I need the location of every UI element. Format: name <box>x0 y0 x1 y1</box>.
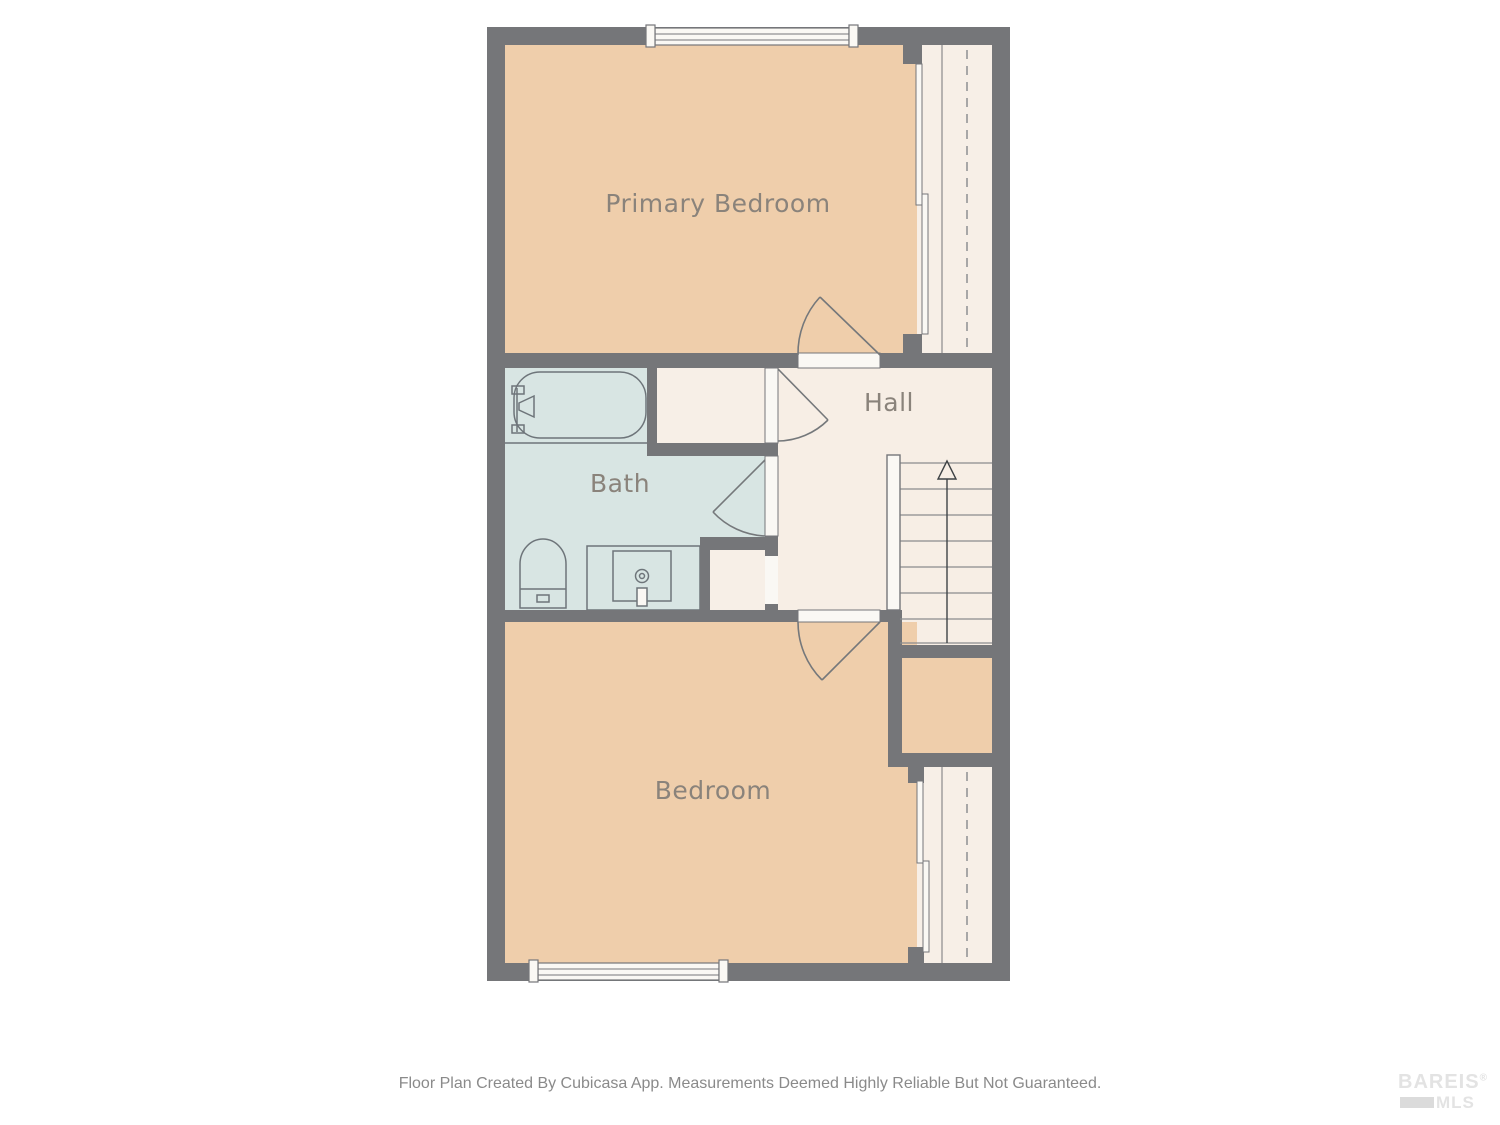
closet-stub-top-b <box>903 334 922 353</box>
watermark-bareis-mls: BAREIS® MLS <box>1398 1072 1490 1111</box>
watermark-brand: BAREIS® <box>1398 1072 1490 1092</box>
closet-stub-top-a <box>903 45 922 64</box>
wall-bedroom-hall-left <box>487 353 798 368</box>
wall-bedroom-hall-right <box>880 353 1010 368</box>
room-label-primary-bedroom: Primary Bedroom <box>605 189 830 218</box>
stair-railing <box>887 455 900 610</box>
room-label-hall: Hall <box>864 388 914 417</box>
door-stub-1 <box>765 443 778 456</box>
primary-bedroom-door-sill <box>798 353 880 368</box>
hall-closet-a-floor <box>657 366 765 443</box>
closet-b-stub-top <box>765 550 778 556</box>
outer-wall-right <box>992 27 1010 981</box>
alcove-bottom-wall <box>902 753 992 767</box>
closet-b-left-wall <box>700 537 710 622</box>
room-label-bedroom: Bedroom <box>655 776 772 805</box>
stair-bottom-wall <box>902 645 992 658</box>
sliding-door-leaf <box>922 194 928 334</box>
floor-plan-drawing: Primary Bedroom Bath Hall Bedroom <box>0 0 1500 1125</box>
closet-a-bottom-wall <box>647 443 773 456</box>
wall-bath-bedroom <box>487 610 798 622</box>
footer-disclaimer: Floor Plan Created By Cubicasa App. Meas… <box>0 1075 1500 1093</box>
watermark-mls: MLS <box>1398 1094 1490 1111</box>
watermark-bar-icon <box>1400 1097 1434 1108</box>
bedroom-door-sill <box>798 610 880 622</box>
floor-plan-page: Primary Bedroom Bath Hall Bedroom Floor … <box>0 0 1500 1125</box>
window-bottom <box>529 960 728 982</box>
closet-b-opening <box>765 556 778 604</box>
sliding-door-leaf <box>917 781 923 863</box>
bath-door-sill <box>765 456 778 536</box>
window-top <box>646 25 858 47</box>
hall-closet-b-floor <box>710 550 765 610</box>
sink-drain <box>637 588 647 606</box>
room-label-bath: Bath <box>590 469 650 498</box>
closet-b-top-wall <box>700 537 778 550</box>
closet-a-door-sill <box>765 368 778 443</box>
outer-wall-left <box>487 27 505 981</box>
sliding-door-leaf <box>916 64 922 205</box>
closet-b-stub-bottom <box>765 604 778 610</box>
closet-a-left-wall <box>647 353 657 456</box>
registered-mark-icon: ® <box>1480 1072 1488 1083</box>
closet-stub-bottom-b <box>908 947 924 963</box>
wall-stair-bedroom <box>888 610 902 767</box>
bedroom-alcove-floor <box>898 658 992 753</box>
sliding-door-leaf <box>923 861 929 952</box>
